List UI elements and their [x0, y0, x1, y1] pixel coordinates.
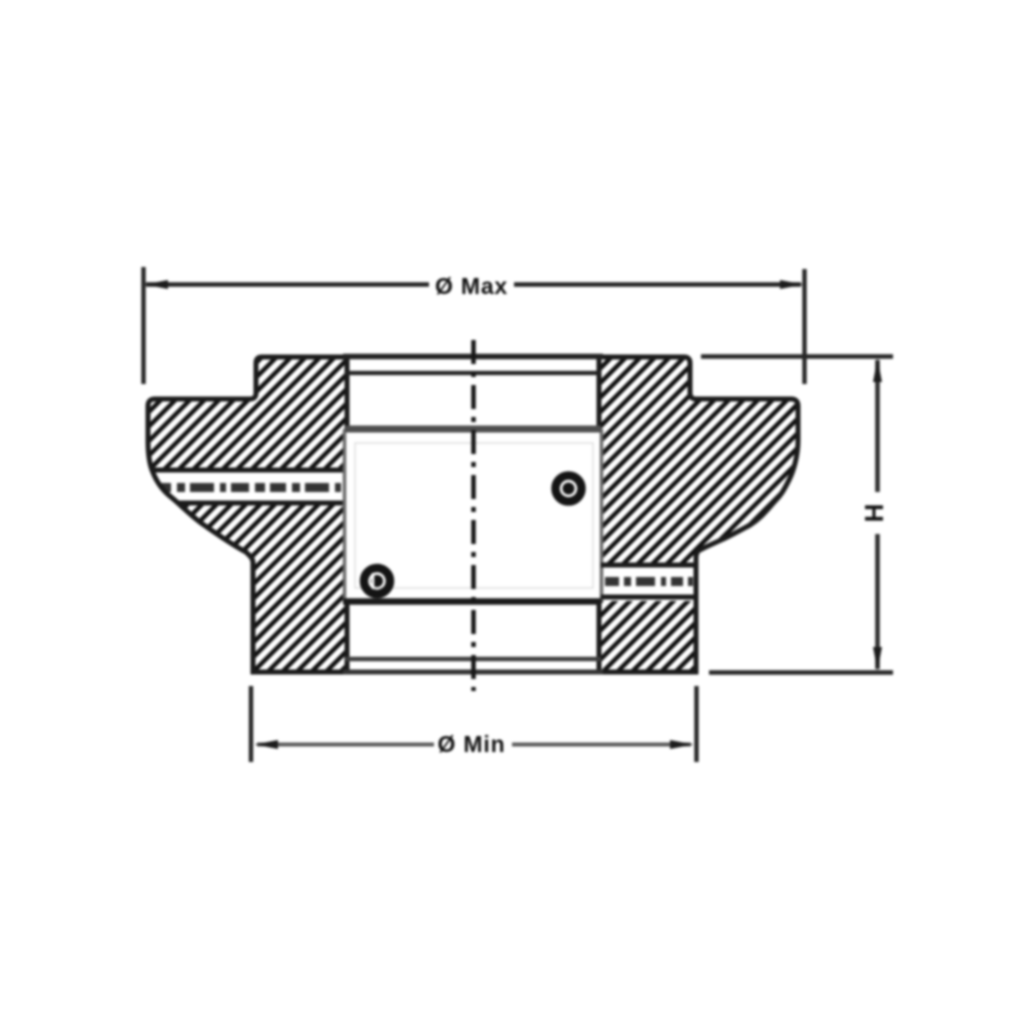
- svg-text:H: H: [859, 504, 889, 523]
- svg-text:Ø Max: Ø Max: [435, 273, 508, 299]
- svg-text:Ø Min: Ø Min: [438, 731, 506, 757]
